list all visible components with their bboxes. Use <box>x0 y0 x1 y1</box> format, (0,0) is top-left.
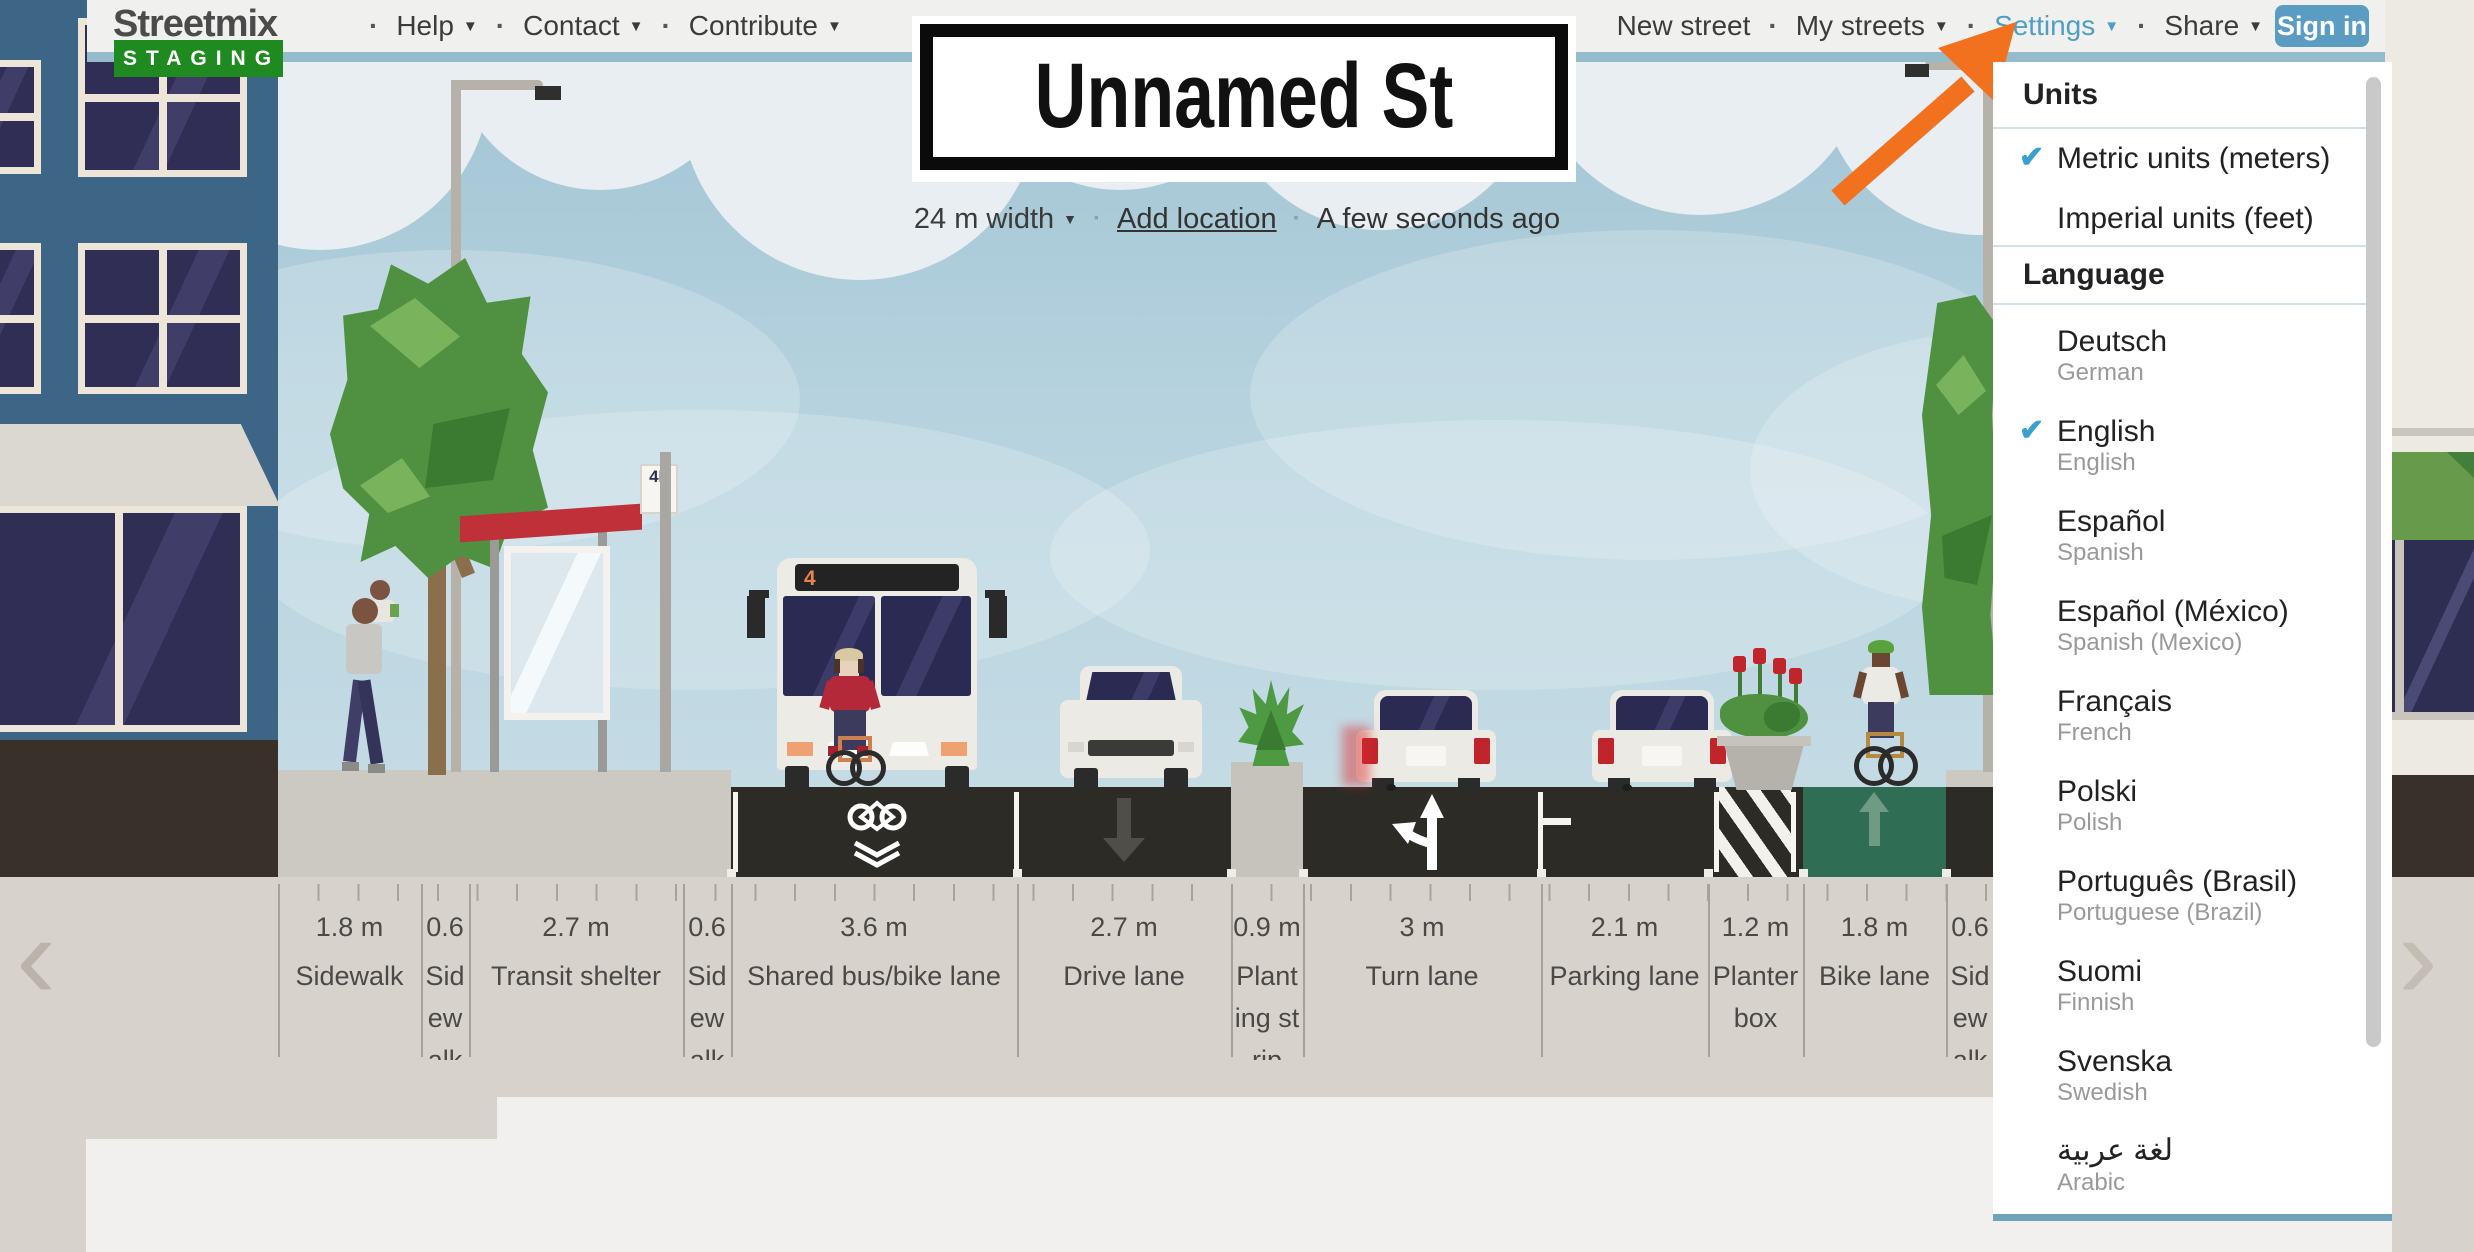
segment-label[interactable]: 2.1 mParking lane <box>1541 877 1708 1060</box>
turn-lane-arrow-icon <box>1388 792 1460 872</box>
cloud <box>1050 420 1950 690</box>
settings-dropdown: Units ✔ Metric units (meters) Imperial u… <box>1993 62 2392 1221</box>
tulip <box>1733 656 1746 672</box>
lane-line <box>1791 792 1796 872</box>
cyclist <box>822 648 882 793</box>
staging-badge: STAGING <box>114 40 283 77</box>
parking-tick <box>1543 818 1571 825</box>
separator: · <box>369 10 378 42</box>
sharrow-marking-icon <box>833 795 923 870</box>
segment-label[interactable]: 0.9 mPlanting strip <box>1231 877 1303 1060</box>
car-rear <box>1592 690 1732 790</box>
left-building[interactable] <box>0 0 278 740</box>
drive-lane-arrowhead-icon <box>1103 838 1145 862</box>
segment-label[interactable]: 0.6Sidewalk <box>421 877 469 1060</box>
segment-label[interactable]: 0.6Sidewalk <box>1946 877 1994 1060</box>
bus-route-sign: 4 <box>795 564 959 591</box>
lane-line <box>1538 792 1543 872</box>
sign-in-button[interactable]: Sign in <box>2275 5 2369 47</box>
taillight <box>1474 738 1490 764</box>
face <box>839 661 859 677</box>
segment-sidewalk-left[interactable] <box>278 770 731 877</box>
street-name: Unnamed St <box>1001 37 1486 155</box>
bike-lane-arrowhead-icon <box>1859 792 1889 812</box>
right-building[interactable] <box>2385 0 2474 877</box>
child-head <box>370 580 390 600</box>
add-location-link[interactable]: Add location <box>1117 203 1277 236</box>
dropdown-scrollbar[interactable] <box>2366 77 2381 1047</box>
segment-label[interactable]: 1.2 mPlanter box <box>1708 877 1803 1060</box>
car-rear <box>1356 690 1496 790</box>
transit-sign: 4F <box>640 464 678 514</box>
palette-empty-area <box>86 1139 502 1252</box>
caret-down-icon: ▼ <box>463 18 478 35</box>
check-icon: ✔ <box>2019 413 2044 448</box>
shelter-glass-panel <box>504 546 610 720</box>
bus-route-number: 4 <box>804 567 816 591</box>
segment-label[interactable]: 2.7 mTransit shelter <box>469 877 683 1060</box>
scroll-left-button[interactable]: ‹ <box>16 912 56 1002</box>
caret-down-icon: ▼ <box>1063 211 1077 227</box>
lane-line <box>733 792 738 872</box>
segment-label[interactable]: 3.6 mShared bus/bike lane <box>731 877 1017 1060</box>
scroll-right-button[interactable]: › <box>2398 912 2438 1002</box>
cyclist <box>1852 640 1910 790</box>
planter-rim <box>1717 736 1811 746</box>
tulip <box>1789 668 1802 684</box>
menu-new-street[interactable]: New street <box>1617 10 1751 42</box>
adult-head <box>352 598 378 624</box>
segment-label[interactable]: 0.6Sidewalk <box>683 877 731 1060</box>
tree[interactable] <box>1922 295 1998 695</box>
separator: · <box>1768 10 1777 42</box>
license-plate <box>1642 746 1682 766</box>
grille <box>1088 740 1174 756</box>
plant <box>1238 680 1304 766</box>
adult-torso <box>346 624 382 674</box>
units-header: Units <box>2023 78 2098 112</box>
lane-line <box>1014 792 1019 872</box>
street-name-sign[interactable]: Unnamed St <box>912 16 1576 182</box>
torso <box>830 676 870 712</box>
separator: · <box>1093 205 1101 233</box>
menu-help[interactable]: Help▼ <box>396 10 477 42</box>
separator: · <box>661 10 670 42</box>
caret-down-icon: ▼ <box>827 18 842 35</box>
segment-label[interactable]: 1.8 mBike lane <box>1803 877 1946 1060</box>
tulip <box>1753 648 1766 664</box>
taillight <box>1598 738 1614 764</box>
car-body <box>1060 700 1202 778</box>
pedestrians <box>340 580 400 772</box>
bike-wheel <box>850 750 886 786</box>
lane-line <box>1714 792 1719 872</box>
license-plate <box>1406 746 1446 766</box>
caret-down-icon: ▼ <box>2104 18 2119 35</box>
bus-shelter[interactable]: 4F <box>460 505 680 775</box>
road-asphalt-west[interactable] <box>731 787 1231 877</box>
awning <box>0 424 280 506</box>
menu-share[interactable]: Share▼ <box>2164 10 2263 42</box>
segment-planting-strip[interactable] <box>1231 762 1303 877</box>
drive-lane-arrow-icon <box>1117 798 1131 840</box>
segment-label[interactable]: 1.8 mSidewalk <box>278 877 421 1060</box>
menu-contact[interactable]: Contact▼ <box>523 10 643 42</box>
bike-lane-arrow-icon <box>1869 808 1880 846</box>
segment-label[interactable]: 2.7 mDrive lane <box>1017 877 1231 1060</box>
brake-light-glow <box>1342 726 1370 786</box>
streetmix-app: 4F 4 <box>0 0 2474 1252</box>
rear-window <box>1616 696 1708 732</box>
car-front <box>1060 666 1202 790</box>
caret-down-icon: ▼ <box>629 18 644 35</box>
separator: · <box>1293 205 1301 233</box>
planter-box-hatching <box>1719 787 1791 877</box>
right-awning <box>2385 452 2474 540</box>
street-info-bar: 24 m width▼ · Add location · A few secon… <box>787 196 1687 242</box>
bus-windshield <box>881 596 971 696</box>
shelter-roof <box>460 504 642 543</box>
bike-wheel <box>1878 746 1918 786</box>
tulip <box>1773 658 1786 674</box>
language-header: Language <box>2023 258 2165 292</box>
planter-pot <box>1721 746 1807 790</box>
menu-contribute[interactable]: Contribute▼ <box>689 10 842 42</box>
last-edited-text: A few seconds ago <box>1317 203 1560 236</box>
rear-window <box>1380 696 1472 732</box>
left-building-ground <box>0 740 278 877</box>
separator: · <box>2137 10 2146 42</box>
check-icon: ✔ <box>2019 140 2044 175</box>
street-width-dropdown[interactable]: 24 m width▼ <box>914 203 1077 236</box>
helmet <box>1868 640 1894 654</box>
separator: · <box>496 10 505 42</box>
shop-window <box>0 506 247 732</box>
segment-label[interactable]: 3 mTurn lane <box>1303 877 1541 1060</box>
planter-box <box>1714 648 1814 790</box>
caret-down-icon: ▼ <box>2248 18 2263 35</box>
